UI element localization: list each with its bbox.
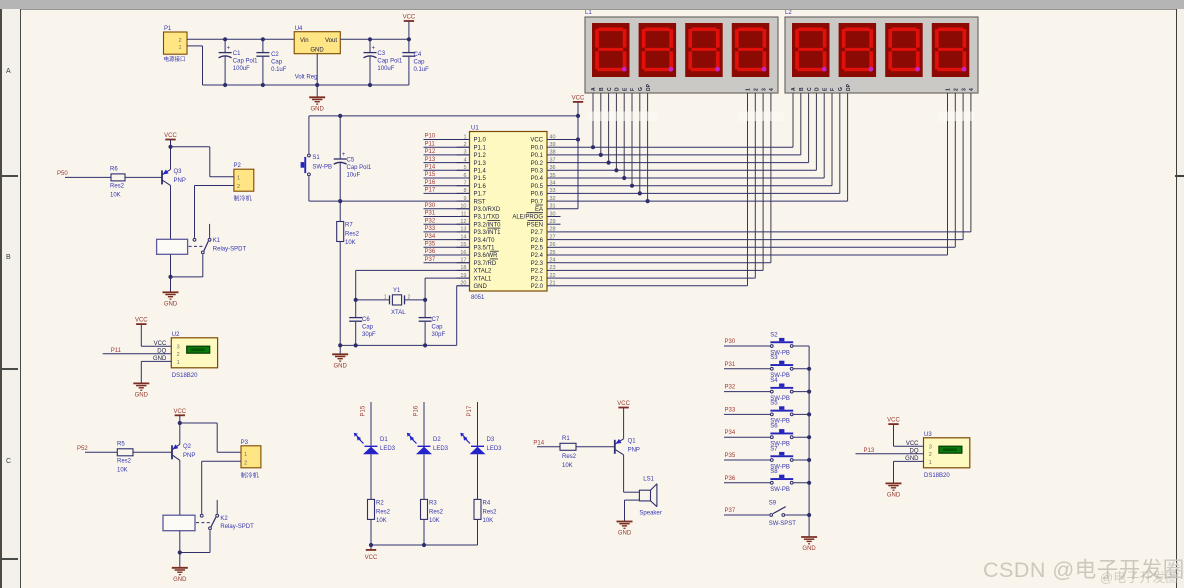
svg-text:GND: GND (173, 577, 187, 583)
svg-text:C7: C7 (432, 317, 440, 323)
svg-text:P34: P34 (725, 430, 736, 436)
svg-text:L2: L2 (785, 10, 792, 16)
svg-text:Vin: Vin (300, 38, 309, 44)
svg-text:C5: C5 (347, 158, 355, 164)
svg-text:LED3: LED3 (487, 446, 503, 452)
svg-text:D1: D1 (380, 437, 388, 443)
svg-text:K2: K2 (220, 516, 228, 522)
svg-text:GND: GND (618, 531, 632, 537)
svg-text:2: 2 (408, 294, 411, 300)
svg-text:P1.5: P1.5 (474, 176, 487, 182)
svg-text:R4: R4 (483, 500, 491, 506)
svg-text:S3: S3 (770, 355, 778, 361)
svg-text:P16: P16 (413, 405, 419, 416)
svg-text:P1.4: P1.4 (474, 169, 487, 175)
svg-text:2: 2 (244, 461, 247, 467)
svg-text:P2: P2 (234, 163, 242, 169)
svg-text:R1: R1 (562, 436, 570, 442)
svg-text:100uF: 100uF (377, 66, 394, 72)
svg-text:S9: S9 (769, 501, 777, 507)
svg-text:XTAL: XTAL (391, 310, 406, 316)
svg-text:P1.7: P1.7 (474, 192, 487, 198)
svg-text:P2.7: P2.7 (531, 230, 544, 236)
svg-text:P0.6: P0.6 (531, 192, 544, 198)
svg-text:SW-SPST: SW-SPST (769, 521, 797, 527)
svg-text:10K: 10K (376, 518, 387, 524)
svg-text:GND: GND (310, 48, 324, 54)
svg-text:Cap: Cap (362, 324, 374, 330)
svg-text:LED3: LED3 (380, 446, 396, 452)
svg-text:36: 36 (550, 165, 556, 171)
svg-text:S4: S4 (770, 378, 778, 384)
svg-text:P1.0: P1.0 (474, 138, 487, 144)
svg-text:18: 18 (460, 265, 466, 271)
svg-text:3: 3 (929, 445, 932, 451)
svg-text:Q2: Q2 (183, 444, 192, 450)
svg-text:C3: C3 (377, 51, 385, 57)
svg-text:30: 30 (550, 211, 556, 217)
svg-text:S2: S2 (770, 332, 778, 338)
svg-text:10K: 10K (562, 463, 573, 469)
svg-text:电源接口: 电源接口 (164, 55, 186, 63)
svg-text:P37: P37 (425, 257, 436, 263)
svg-text:S1: S1 (312, 155, 320, 161)
svg-text:P0.2: P0.2 (531, 161, 544, 167)
svg-text:Res2: Res2 (110, 184, 125, 190)
svg-text:0.1uF: 0.1uF (271, 67, 287, 73)
svg-text:38: 38 (550, 150, 556, 156)
svg-text:Q3: Q3 (174, 169, 183, 175)
svg-text:31: 31 (550, 204, 556, 210)
svg-text:26: 26 (550, 242, 556, 248)
svg-text:R5: R5 (117, 441, 125, 447)
svg-text:3: 3 (177, 345, 180, 351)
svg-text:P52: P52 (77, 446, 88, 452)
svg-text:+: + (372, 45, 376, 51)
svg-text:P2.3: P2.3 (531, 261, 544, 267)
svg-text:P0.3: P0.3 (531, 169, 544, 175)
svg-text:U3: U3 (924, 432, 932, 438)
svg-text:VCC: VCC (403, 15, 416, 21)
svg-text:1: 1 (237, 175, 240, 181)
svg-text:8051: 8051 (471, 295, 485, 301)
svg-text:PNP: PNP (628, 447, 640, 453)
svg-text:VCC: VCC (173, 409, 186, 415)
svg-text:25: 25 (550, 250, 556, 256)
svg-text:R2: R2 (376, 500, 384, 506)
svg-text:P1: P1 (164, 26, 172, 32)
svg-text:S6: S6 (770, 424, 778, 430)
svg-text:P12: P12 (425, 149, 436, 155)
svg-text:P0.1: P0.1 (531, 153, 544, 159)
svg-text:DS18B20: DS18B20 (924, 473, 950, 479)
svg-text:1: 1 (946, 88, 952, 91)
svg-text:F: F (830, 88, 836, 91)
svg-text:P11: P11 (111, 348, 122, 354)
svg-text:P37: P37 (725, 508, 736, 514)
svg-text:P17: P17 (467, 405, 473, 416)
svg-text:P14: P14 (533, 441, 544, 447)
svg-text:D3: D3 (487, 437, 495, 443)
svg-text:C6: C6 (362, 317, 370, 323)
svg-text:SW-PB: SW-PB (312, 165, 332, 171)
svg-text:Cap: Cap (432, 324, 444, 330)
svg-text:VCC: VCC (135, 318, 148, 324)
svg-text:制冷机: 制冷机 (241, 471, 259, 479)
svg-text:EA: EA (535, 207, 543, 213)
svg-text:P14: P14 (425, 165, 436, 171)
svg-text:Relay-SPDT: Relay-SPDT (213, 246, 247, 252)
svg-text:VCC: VCC (572, 95, 585, 101)
svg-text:100uF: 100uF (233, 66, 250, 72)
svg-text:P33: P33 (725, 407, 736, 413)
svg-text:0.1uF: 0.1uF (414, 67, 430, 73)
svg-text:4: 4 (969, 88, 975, 91)
svg-text:Vout: Vout (325, 38, 337, 44)
svg-text:P30: P30 (425, 203, 436, 209)
svg-text:VCC: VCC (617, 401, 630, 407)
svg-text:P2.6: P2.6 (531, 238, 544, 244)
svg-text:G: G (838, 87, 844, 91)
svg-text:P31: P31 (425, 211, 436, 217)
svg-text:40: 40 (550, 134, 556, 140)
svg-text:Res2: Res2 (117, 458, 132, 464)
svg-text:DS18B20: DS18B20 (172, 373, 198, 379)
svg-text:L1: L1 (585, 10, 592, 16)
svg-text:10K: 10K (345, 240, 356, 246)
svg-text:1: 1 (746, 88, 752, 91)
svg-text:B: B (799, 87, 805, 91)
svg-text:P3.4/T0: P3.4/T0 (474, 238, 496, 244)
svg-text:P35: P35 (425, 242, 436, 248)
svg-text:XTAL2: XTAL2 (474, 269, 493, 275)
svg-text:Res2: Res2 (562, 454, 577, 460)
svg-text:Res2: Res2 (345, 232, 360, 238)
svg-text:P15: P15 (425, 172, 436, 178)
svg-text:1: 1 (929, 460, 932, 466)
svg-text:U4: U4 (295, 26, 303, 32)
svg-text:G: G (638, 87, 644, 91)
svg-text:1: 1 (177, 360, 180, 366)
svg-text:39: 39 (550, 142, 556, 148)
svg-text:P10: P10 (425, 134, 436, 140)
svg-text:GND: GND (311, 107, 325, 113)
svg-text:30pF: 30pF (362, 332, 376, 338)
svg-text:P13: P13 (864, 448, 875, 454)
svg-text:P3: P3 (241, 440, 249, 446)
svg-text:F: F (630, 88, 636, 91)
svg-text:Relay-SPDT: Relay-SPDT (220, 524, 254, 530)
svg-text:P3.5/T1: P3.5/T1 (474, 246, 496, 252)
svg-text:10uF: 10uF (347, 173, 361, 179)
svg-text:P2.4: P2.4 (531, 253, 544, 259)
svg-text:VCC: VCC (530, 138, 543, 144)
svg-text:P0.4: P0.4 (531, 176, 544, 182)
svg-text:P1.3: P1.3 (474, 161, 487, 167)
svg-text:20: 20 (460, 281, 466, 287)
svg-text:P0.7: P0.7 (531, 199, 544, 205)
svg-text:D: D (615, 87, 621, 91)
svg-text:P2.2: P2.2 (531, 269, 544, 275)
svg-text:27: 27 (550, 234, 556, 240)
svg-text:35: 35 (550, 173, 556, 179)
svg-text:2: 2 (954, 88, 960, 91)
svg-text:1: 1 (384, 294, 387, 300)
svg-text:R7: R7 (345, 223, 353, 229)
svg-text:GND: GND (887, 493, 901, 499)
svg-text:R3: R3 (429, 500, 437, 506)
svg-text:GND: GND (802, 546, 816, 552)
svg-text:3: 3 (961, 88, 967, 91)
svg-text:Res2: Res2 (429, 509, 444, 515)
svg-text:P11: P11 (425, 141, 436, 147)
svg-text:A: A (591, 87, 597, 91)
svg-text:VCC: VCC (365, 555, 378, 561)
svg-text:D: D (815, 87, 821, 91)
svg-text:P3.3/INT1: P3.3/INT1 (474, 230, 502, 236)
svg-text:GND: GND (164, 302, 178, 308)
svg-text:制冷机: 制冷机 (234, 195, 252, 203)
svg-text:ALE/PROG: ALE/PROG (512, 215, 543, 221)
svg-text:Y1: Y1 (393, 288, 401, 294)
svg-text:P3.0/RXD: P3.0/RXD (474, 207, 501, 213)
svg-text:Res2: Res2 (483, 509, 498, 515)
svg-text:2: 2 (929, 452, 932, 458)
svg-text:2: 2 (177, 352, 180, 358)
svg-text:P31: P31 (725, 362, 736, 368)
svg-text:S7: S7 (770, 446, 778, 452)
svg-text:3: 3 (761, 88, 767, 91)
svg-text:Q1: Q1 (628, 438, 637, 444)
svg-text:+: + (342, 152, 346, 158)
svg-text:B: B (599, 87, 605, 91)
svg-text:P1.6: P1.6 (474, 184, 487, 190)
svg-text:P50: P50 (57, 171, 68, 177)
svg-text:P34: P34 (425, 234, 436, 240)
svg-text:Cap Pol1: Cap Pol1 (347, 165, 372, 171)
svg-text:K1: K1 (213, 238, 221, 244)
svg-text:30pF: 30pF (432, 332, 446, 338)
svg-text:R6: R6 (110, 167, 118, 173)
svg-text:Cap Pol1: Cap Pol1 (377, 58, 402, 64)
svg-text:P0.0: P0.0 (531, 145, 544, 151)
svg-text:21: 21 (550, 281, 556, 287)
svg-text:32: 32 (550, 196, 556, 202)
svg-text:P36: P36 (425, 249, 436, 255)
svg-text:P3.7/RD: P3.7/RD (474, 261, 497, 267)
svg-text:Cap: Cap (271, 60, 283, 66)
svg-text:P32: P32 (725, 385, 736, 391)
svg-text:P16: P16 (425, 180, 436, 186)
svg-text:C1: C1 (233, 51, 241, 57)
svg-text:P0.5: P0.5 (531, 184, 544, 190)
svg-text:P13: P13 (425, 157, 436, 163)
svg-text:19: 19 (460, 273, 466, 279)
svg-text:10K: 10K (110, 193, 121, 199)
svg-text:S5: S5 (770, 401, 778, 407)
svg-text:23: 23 (550, 265, 556, 271)
svg-text:GND: GND (474, 284, 488, 290)
svg-text:P3.6/WR: P3.6/WR (474, 253, 499, 259)
svg-text:+: + (227, 45, 231, 51)
svg-text:9: 9 (463, 196, 466, 202)
svg-text:XTAL1: XTAL1 (474, 276, 493, 282)
svg-text:P1.1: P1.1 (474, 145, 487, 151)
svg-text:1: 1 (178, 45, 181, 51)
svg-text:VCC: VCC (164, 133, 177, 139)
svg-text:GND: GND (135, 393, 149, 399)
svg-text:D2: D2 (433, 437, 441, 443)
svg-text:Res2: Res2 (376, 509, 391, 515)
svg-text:C4: C4 (414, 52, 422, 58)
svg-text:PNP: PNP (174, 178, 186, 184)
svg-text:P35: P35 (725, 453, 736, 459)
svg-text:C2: C2 (271, 52, 279, 58)
svg-text:29: 29 (550, 219, 556, 225)
svg-text:DP: DP (646, 83, 652, 91)
svg-text:P15: P15 (360, 405, 366, 416)
svg-text:LED3: LED3 (433, 446, 449, 452)
svg-text:P32: P32 (425, 218, 436, 224)
svg-text:C: C (807, 87, 813, 91)
svg-text:S8: S8 (770, 469, 778, 475)
svg-text:10K: 10K (483, 518, 494, 524)
svg-text:Speaker: Speaker (639, 511, 661, 517)
svg-text:VCC: VCC (887, 418, 900, 424)
svg-text:P2.1: P2.1 (531, 276, 544, 282)
svg-text:P17: P17 (425, 188, 436, 194)
svg-text:10K: 10K (429, 518, 440, 524)
svg-text:28: 28 (550, 227, 556, 233)
svg-text:Cap: Cap (414, 60, 426, 66)
svg-text:DP: DP (846, 83, 852, 91)
svg-text:Volt Reg: Volt Reg (295, 75, 318, 81)
svg-text:Cap Pol1: Cap Pol1 (233, 58, 258, 64)
svg-text:2: 2 (178, 38, 181, 44)
svg-text:P30: P30 (725, 339, 736, 345)
svg-text:SW-PB: SW-PB (770, 487, 790, 493)
svg-text:RST: RST (474, 199, 486, 205)
svg-text:4: 4 (769, 88, 775, 91)
svg-text:U1: U1 (471, 126, 479, 132)
svg-text:24: 24 (550, 258, 556, 264)
svg-text:C: C (607, 87, 613, 91)
svg-text:P36: P36 (725, 476, 736, 482)
svg-text:P33: P33 (425, 226, 436, 232)
svg-text:PSEN: PSEN (527, 222, 543, 228)
svg-text:U2: U2 (172, 332, 180, 338)
svg-text:P2.5: P2.5 (531, 246, 544, 252)
svg-text:33: 33 (550, 188, 556, 194)
svg-text:PNP: PNP (183, 453, 195, 459)
svg-text:LS1: LS1 (643, 477, 654, 483)
svg-text:P2.0: P2.0 (531, 284, 544, 290)
svg-text:22: 22 (550, 273, 556, 279)
svg-text:2: 2 (237, 184, 240, 190)
svg-text:A: A (791, 87, 797, 91)
svg-text:37: 37 (550, 157, 556, 163)
svg-text:2: 2 (754, 88, 760, 91)
svg-text:P3.1/TXD: P3.1/TXD (474, 215, 501, 221)
svg-text:1: 1 (244, 452, 247, 458)
svg-text:P1.2: P1.2 (474, 153, 487, 159)
svg-text:P3.2/INT0: P3.2/INT0 (474, 222, 502, 228)
svg-text:34: 34 (550, 181, 556, 187)
svg-text:GND: GND (334, 364, 348, 370)
svg-text:10K: 10K (117, 467, 128, 473)
